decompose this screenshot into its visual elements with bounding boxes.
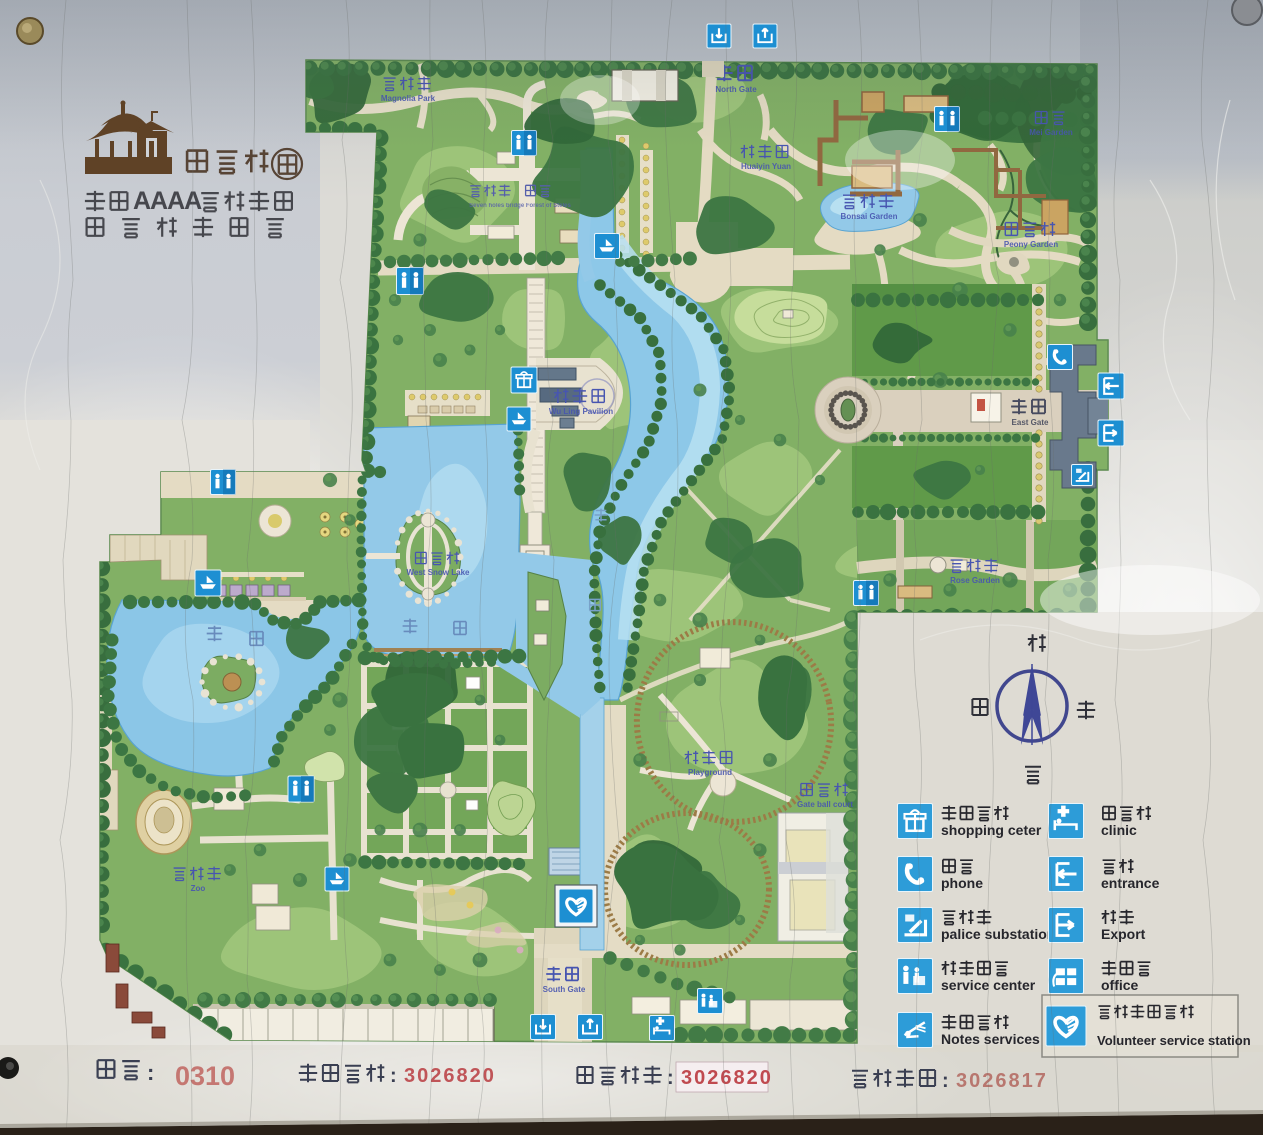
svg-text::: : (147, 1060, 154, 1085)
svg-text:3026820: 3026820 (404, 1065, 496, 1087)
svg-text:0310: 0310 (175, 1061, 235, 1091)
svg-text:entrance: entrance (1101, 875, 1160, 891)
svg-text:Export: Export (1101, 926, 1146, 942)
svg-text:3026820: 3026820 (681, 1067, 773, 1089)
svg-text:phone: phone (941, 875, 983, 891)
svg-text::: : (942, 1070, 949, 1092)
svg-text::: : (390, 1065, 397, 1087)
svg-text:palice substation: palice substation (941, 926, 1055, 942)
svg-text:Volunteer service station: Volunteer service station (1097, 1033, 1251, 1048)
svg-text:clinic: clinic (1101, 822, 1137, 838)
svg-text:AAAA: AAAA (133, 187, 202, 215)
svg-text:Notes services: Notes services (941, 1031, 1040, 1047)
svg-text:office: office (1101, 977, 1139, 993)
svg-text:3026817: 3026817 (956, 1070, 1048, 1092)
